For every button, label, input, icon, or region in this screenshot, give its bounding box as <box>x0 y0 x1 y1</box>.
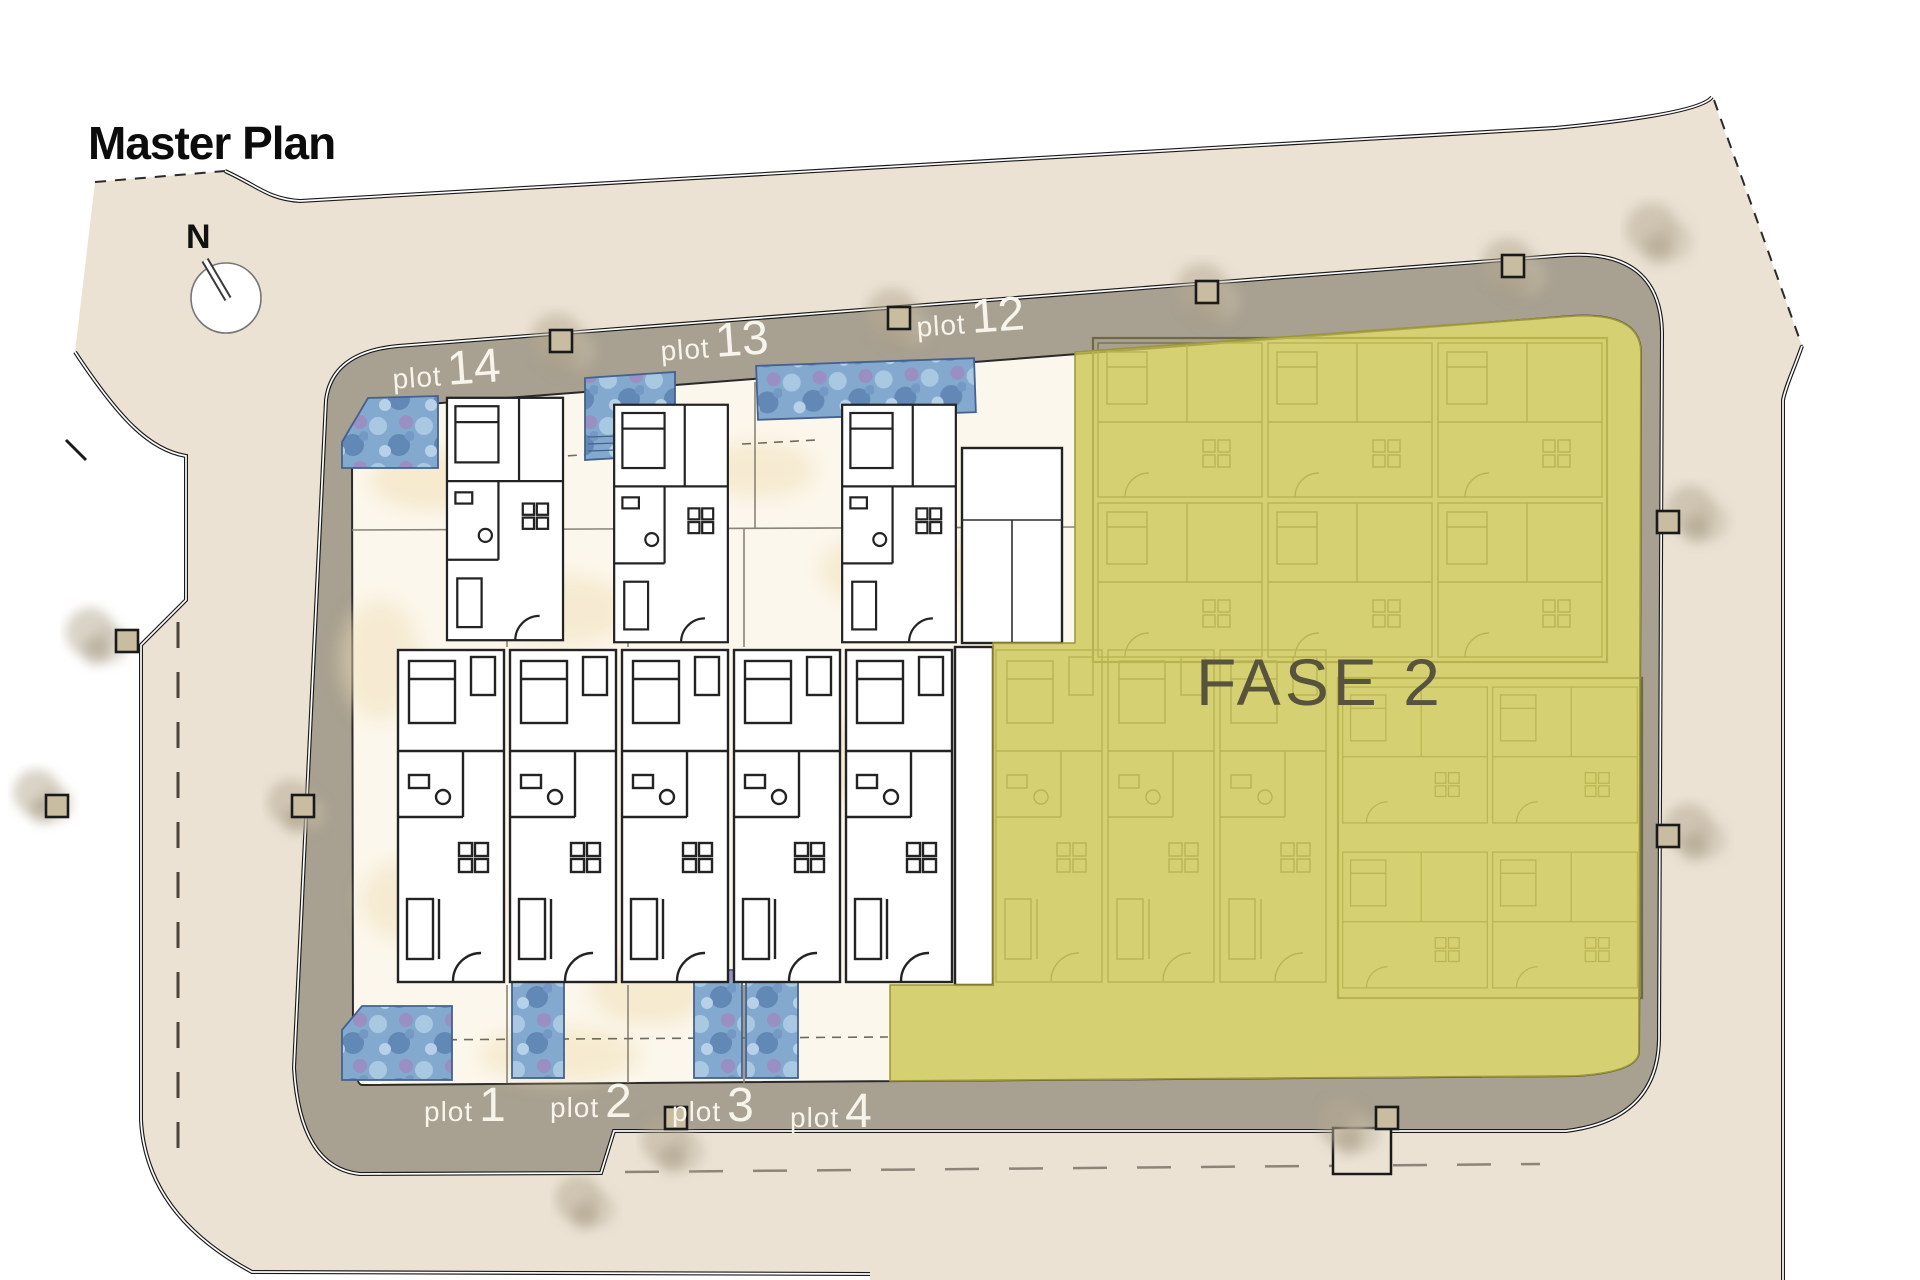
unit-plot-3 <box>734 650 840 982</box>
master-plan-drawing: Master Plan N plot 14 plot 13 plot 12 pl… <box>0 0 1920 1280</box>
pool-plot-4 <box>746 970 798 1078</box>
house-plot-12 <box>842 405 956 642</box>
survey-tick <box>66 440 86 460</box>
fase-2-phase-label: FASE 2 <box>1196 644 1444 720</box>
house-plot-14 <box>447 398 563 640</box>
pool-plot-1 <box>342 1006 452 1080</box>
plot-14-label: plot 14 <box>390 338 502 400</box>
plot-13-label: plot 13 <box>658 310 770 372</box>
page-title: Master Plan <box>88 116 335 170</box>
pool-plot-2 <box>512 970 564 1078</box>
pool-plot-3 <box>694 970 742 1078</box>
unit-plot-2a <box>510 650 616 982</box>
plot-12-label: plot 12 <box>914 286 1026 348</box>
plot-3-label: plot 3 <box>672 1078 754 1133</box>
unit-plot-4 <box>846 650 952 982</box>
compass-north-label: N <box>186 218 211 257</box>
plot-2-label: plot 2 <box>550 1074 632 1129</box>
plot-1-label: plot 1 <box>424 1078 506 1133</box>
plot-4-label: plot 4 <box>790 1084 872 1139</box>
unit-plot-2b <box>622 650 728 982</box>
unit-plot-1 <box>398 650 504 982</box>
bottom-row-building-strip <box>398 647 993 985</box>
site-plan-canvas <box>0 0 1920 1280</box>
house-plot-13 <box>614 405 728 642</box>
road-curb-right <box>1783 346 1802 1280</box>
unit-sliver <box>955 647 993 985</box>
